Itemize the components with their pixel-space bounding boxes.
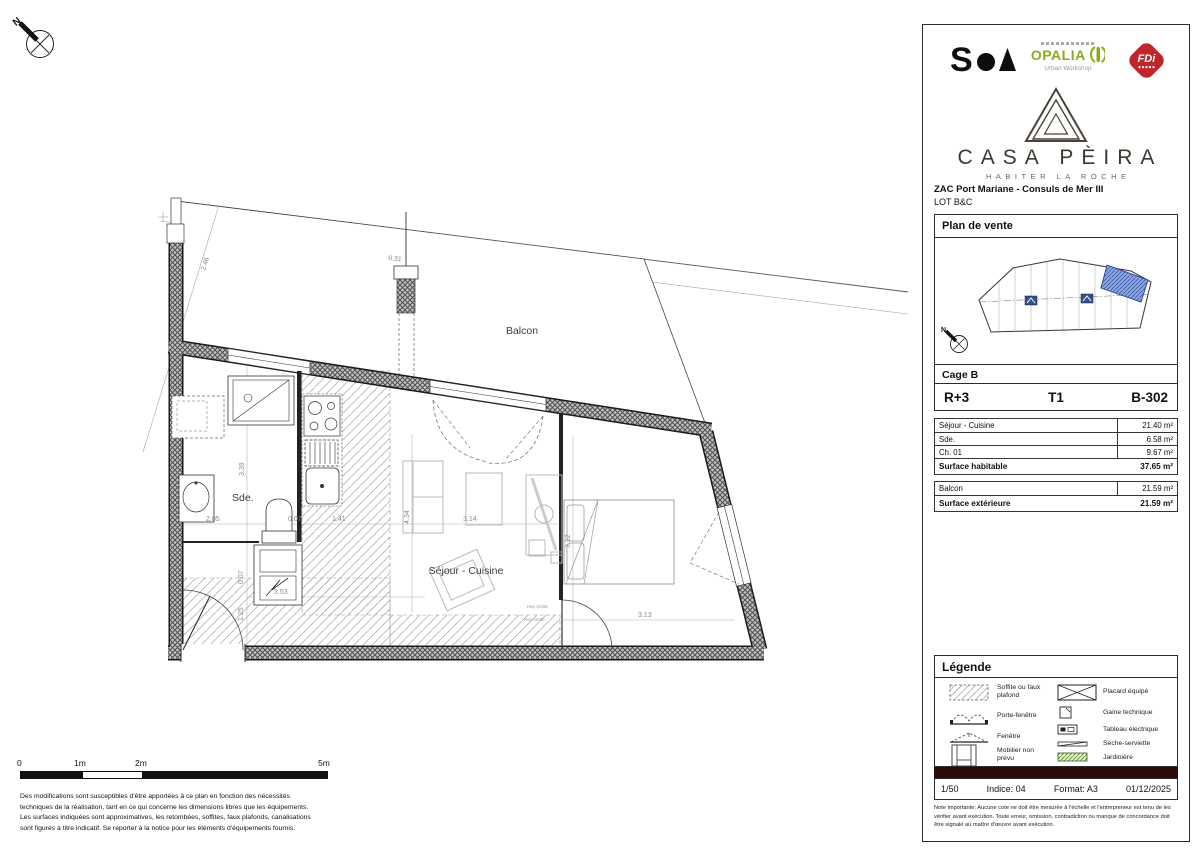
- scale-segment: [20, 771, 82, 779]
- electrical-panel-icon: [1057, 724, 1079, 736]
- legend-label: Tableau électrique: [1103, 726, 1173, 734]
- svg-text:Hsp 2m50: Hsp 2m50: [524, 617, 545, 622]
- section-plan-de-vente: Plan de vente: [934, 214, 1178, 238]
- towel-dryer-icon: [1057, 740, 1089, 748]
- french-door-icon: [949, 706, 989, 726]
- surface-value: 21.40 m²: [1117, 419, 1177, 432]
- svg-text:3.53: 3.53: [274, 589, 288, 596]
- fdi-diamond: FDi: [1125, 39, 1166, 80]
- svg-text:0.07: 0.07: [288, 516, 302, 523]
- surface-row: Balcon 21.59 m²: [935, 482, 1177, 495]
- surface-label: Ch. 01: [935, 448, 1117, 457]
- legend-label: Fenêtre: [997, 733, 1053, 741]
- drawing-indice: Indice: 04: [987, 784, 1026, 794]
- bathroom-fixtures: [172, 376, 302, 605]
- surface-label: Surface extérieure: [935, 499, 1117, 508]
- fdi-logo: FDi: [1126, 40, 1166, 80]
- surface-label: Sde.: [935, 435, 1117, 444]
- svg-text:1.25: 1.25: [238, 607, 245, 621]
- key-plan-box: N: [934, 238, 1178, 365]
- cage-label: Cage B: [935, 365, 1177, 381]
- drawing-scale: 1/50: [941, 784, 959, 794]
- fdi-subline: [1138, 65, 1154, 67]
- scale-segment: [143, 771, 328, 779]
- svg-text:2.05: 2.05: [206, 516, 220, 523]
- opalia-subtitle: Urban Workshop: [1022, 65, 1114, 72]
- legend-label: Mobilier non prévu: [997, 747, 1049, 764]
- svg-text:N: N: [941, 327, 946, 334]
- casa-peira-triangle-icon: [1023, 86, 1089, 144]
- legend-box: Légende Soffite ou faux plafond Porte-fe…: [934, 655, 1178, 767]
- svg-text:4.34: 4.34: [404, 510, 411, 524]
- soa-logo: S: [950, 40, 1016, 78]
- planter-icon: [1057, 752, 1089, 763]
- duct-icon: [1059, 706, 1073, 720]
- svg-text:1.41: 1.41: [332, 516, 346, 523]
- surface-value: 9.67 m²: [1117, 446, 1177, 458]
- svg-text:Hsp 2m50: Hsp 2m50: [527, 604, 548, 609]
- opalia-topline: [1041, 42, 1095, 45]
- svg-text:3.39: 3.39: [239, 462, 246, 476]
- section-cage: Cage B: [934, 365, 1178, 384]
- legend-label: Jardinière: [1103, 754, 1173, 762]
- project-title: ZAC Port Mariane - Consuls de Mer III: [934, 184, 1103, 195]
- unit-ref: B-302: [1088, 390, 1177, 405]
- scale-segment: [82, 771, 143, 779]
- opalia-icon: [1090, 46, 1105, 63]
- scale-tick: 2m: [135, 758, 147, 768]
- title-block-accent-bar: [934, 767, 1178, 778]
- legend-title: Légende: [935, 656, 1177, 678]
- surface-row: Ch. 01 9.67 m²: [935, 445, 1177, 458]
- north-arrow-icon: N: [11, 16, 54, 58]
- brand-name: CASA PÈIRA: [934, 146, 1178, 170]
- unit-floor: R+3: [935, 390, 1024, 405]
- surface-total-row: Surface habitable 37.65 m²: [935, 458, 1177, 474]
- important-note: Note importante: Aucune cote ne doit êtr…: [934, 804, 1180, 830]
- scale-bar: 0 1m 2m 5m: [12, 758, 342, 784]
- opalia-wordmark: OPALIA: [1031, 47, 1086, 63]
- svg-text:Sde.: Sde.: [232, 492, 254, 504]
- unit-type: T1: [1024, 390, 1088, 405]
- section-title: Plan de vente: [935, 215, 1177, 232]
- key-plan-north-icon: N: [941, 327, 968, 353]
- surface-value: 21.59 m²: [1117, 482, 1177, 495]
- window-icon: [949, 730, 989, 744]
- drawing-date: 01/12/2025: [1126, 784, 1171, 794]
- kitchen-fixtures: [302, 394, 342, 506]
- soffit-icon: [949, 684, 989, 702]
- surface-value: 6.58 m²: [1117, 433, 1177, 445]
- key-plan-map: N: [935, 238, 1177, 363]
- scale-tick: 1m: [74, 758, 86, 768]
- legend-label: Sèche-serviette: [1103, 740, 1173, 748]
- living-furniture: [403, 461, 562, 611]
- svg-text:Balcon: Balcon: [506, 325, 538, 337]
- plan-sheet: N: [0, 0, 1199, 848]
- scale-tick: 5m: [318, 758, 330, 768]
- fdi-wordmark: FDi: [1137, 53, 1155, 64]
- disclaimer-text: Des modifications sont susceptibles d'êt…: [20, 792, 320, 834]
- surface-total-row: Surface extérieure 21.59 m²: [935, 495, 1177, 511]
- surface-label: Séjour - Cuisine: [935, 421, 1117, 430]
- legend-label: Porte-fenêtre: [997, 712, 1053, 720]
- surface-row: Sde. 6.58 m²: [935, 432, 1177, 445]
- project-lot: LOT B&C: [934, 197, 972, 207]
- legend-label: Gaine technique: [1103, 709, 1173, 717]
- svg-text:3.13: 3.13: [638, 612, 652, 619]
- drawing-format: Format: A3: [1054, 784, 1098, 794]
- legend-label: Placard équipé: [1103, 688, 1173, 696]
- surfaces-table: Séjour - Cuisine 21.40 m² Sde. 6.58 m² C…: [934, 418, 1178, 512]
- surface-value: 21.59 m²: [1117, 496, 1177, 511]
- unit-summary-row: R+3 T1 B-302: [934, 384, 1178, 411]
- svg-text:S: S: [950, 41, 973, 78]
- legend-label: Soffite ou faux plafond: [997, 684, 1049, 701]
- surface-row: Séjour - Cuisine 21.40 m²: [935, 419, 1177, 432]
- bedroom-furniture: [564, 500, 674, 584]
- drawing-info-row: 1/50 Indice: 04 Format: A3 01/12/2025: [934, 778, 1178, 800]
- svg-text:Séjour - Cuisine: Séjour - Cuisine: [429, 565, 504, 577]
- svg-text:3.92: 3.92: [565, 534, 572, 548]
- opalia-logo: OPALIA Urban Workshop: [1022, 42, 1114, 72]
- svg-text:0.07: 0.07: [238, 570, 245, 584]
- brand-tagline: HABITER LA ROCHE: [934, 172, 1178, 181]
- floor-plan-drawing: N: [0, 0, 920, 760]
- scale-tick: 0: [17, 758, 22, 768]
- surface-label: Surface habitable: [935, 462, 1117, 471]
- svg-text:3.14: 3.14: [463, 516, 477, 523]
- closet-icon: [1057, 684, 1097, 702]
- svg-text:8.31: 8.31: [388, 255, 402, 263]
- surface-value: 37.65 m²: [1117, 459, 1177, 474]
- furniture-icon: [951, 744, 977, 767]
- surface-label: Balcon: [935, 484, 1117, 493]
